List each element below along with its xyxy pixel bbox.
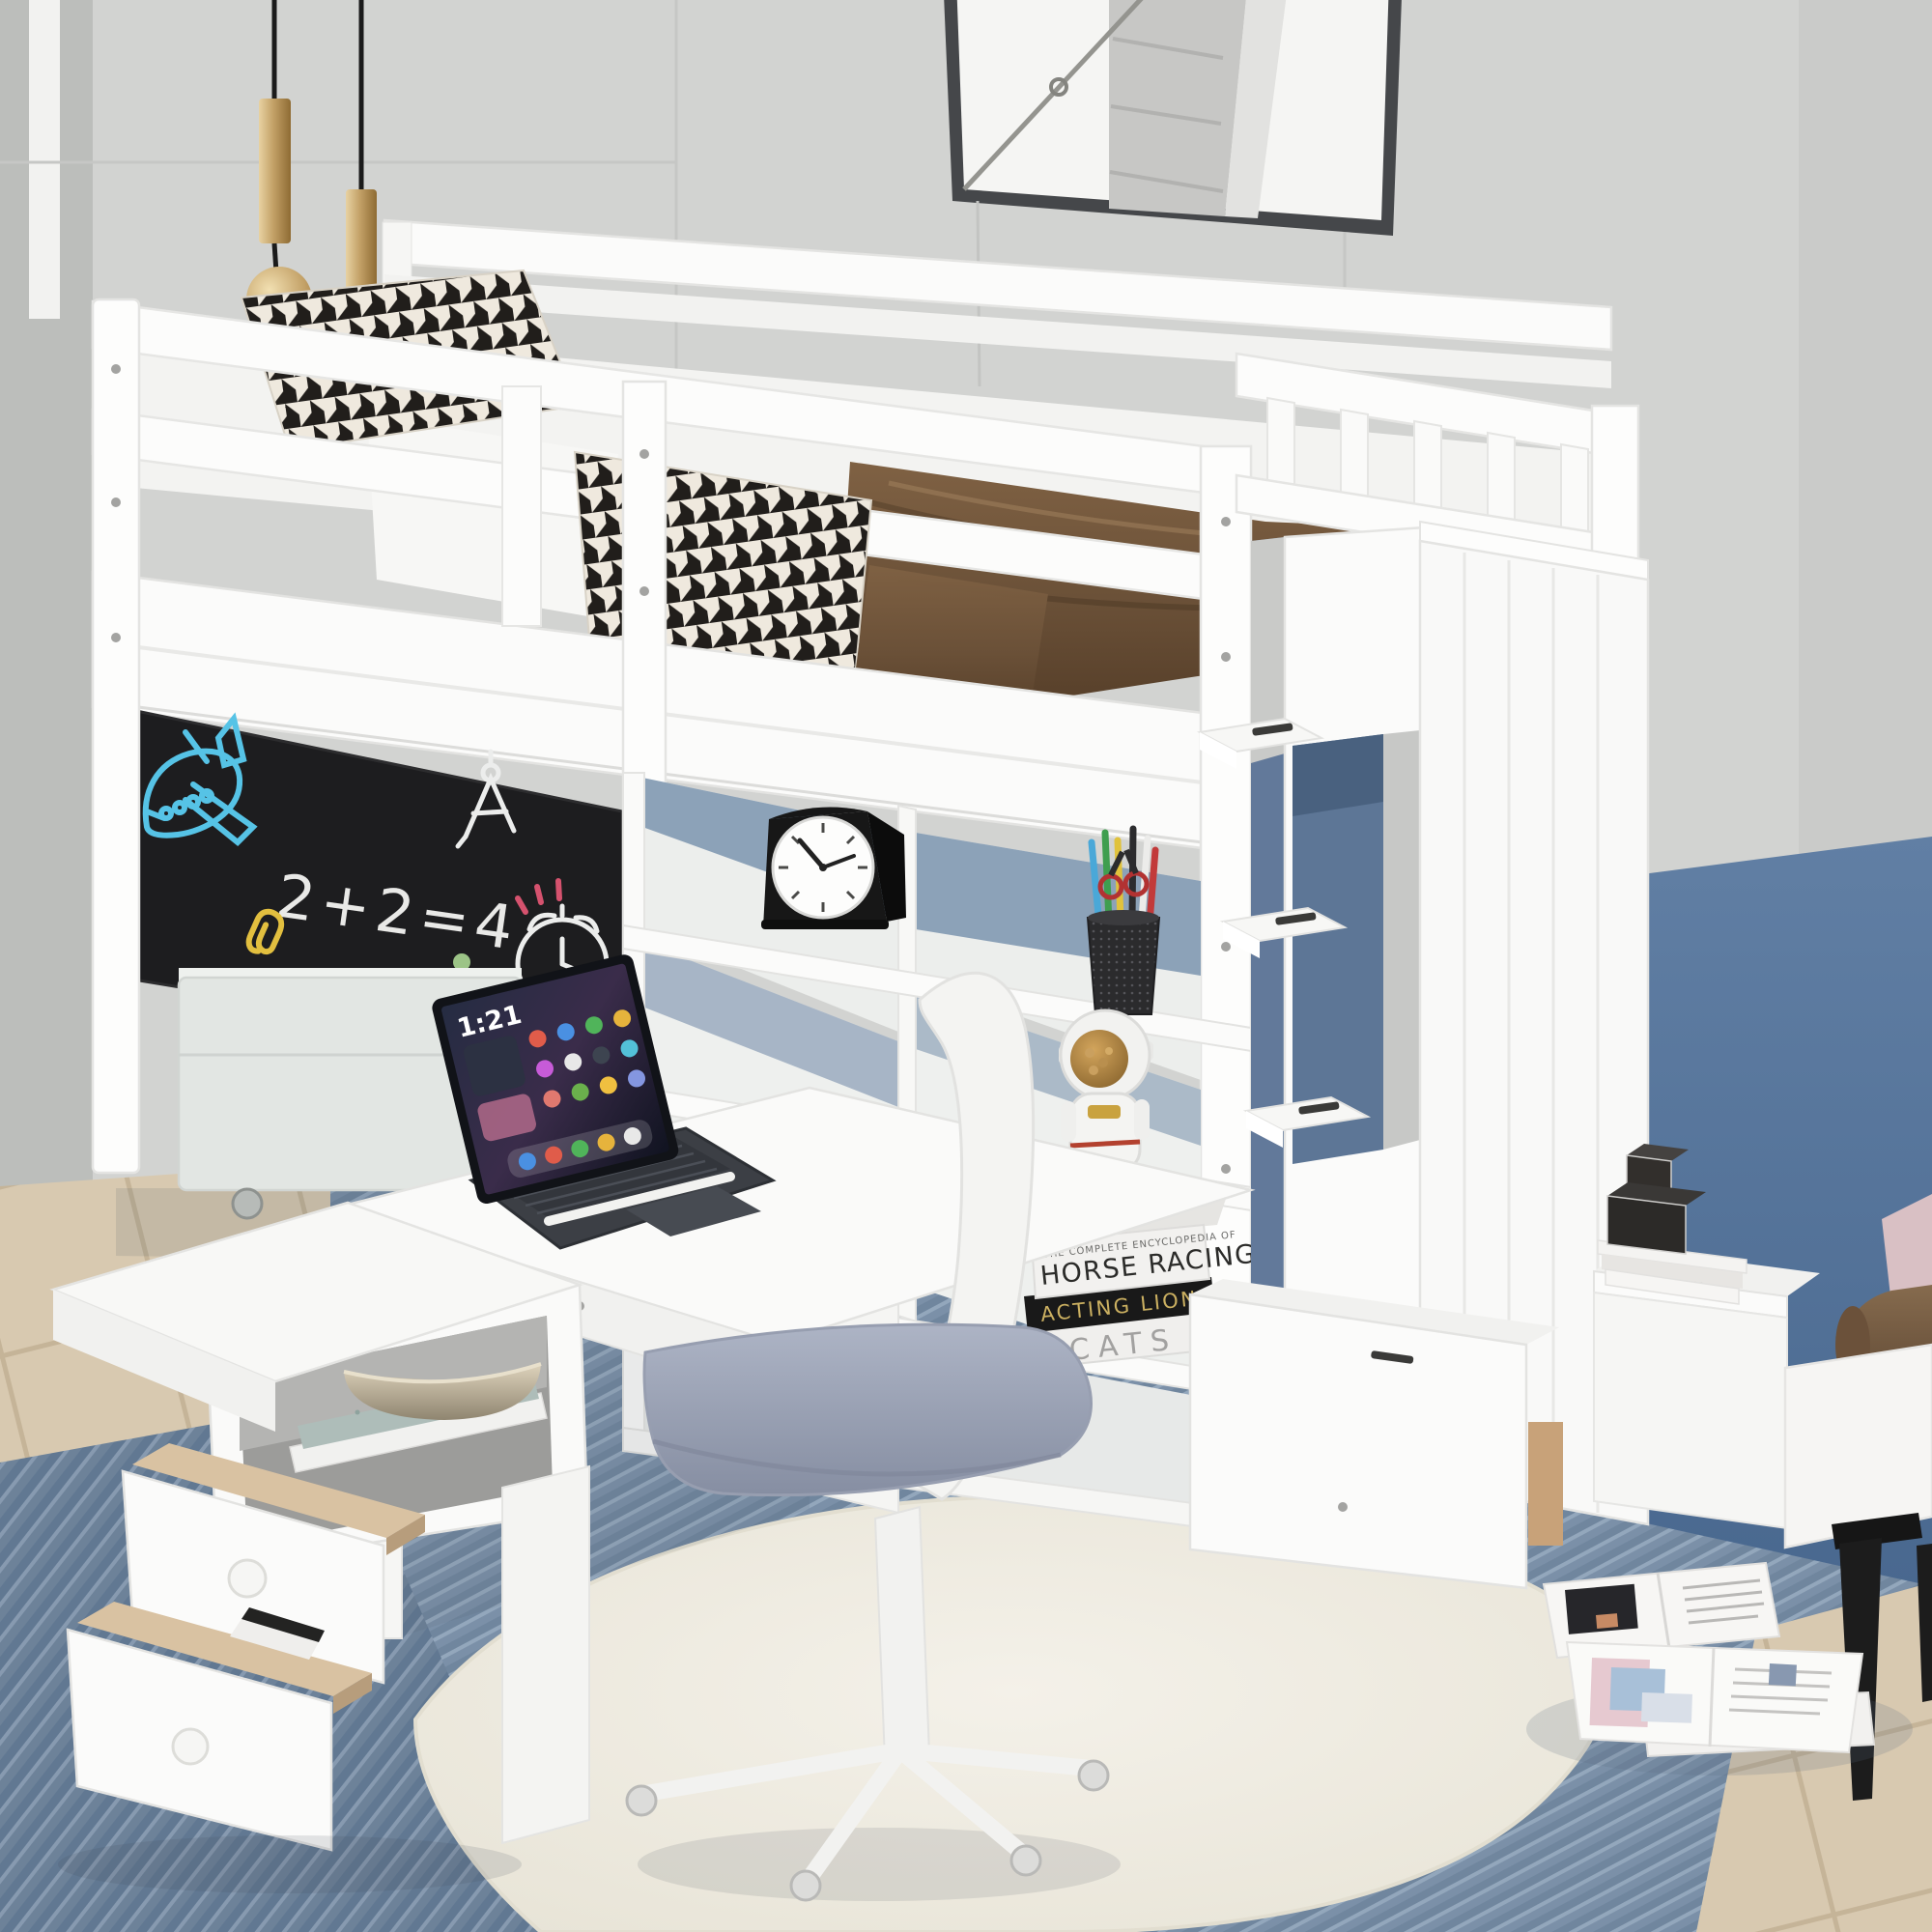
bed-post-mid-left xyxy=(502,386,541,626)
return-side xyxy=(502,1466,589,1843)
product-photo: 2+2=4 xyxy=(0,0,1932,1932)
stair-base-cabinet xyxy=(1190,1279,1559,1588)
chair-column xyxy=(875,1507,929,1760)
wood-leg xyxy=(1528,1422,1563,1546)
room-scene: 2+2=4 xyxy=(0,0,1932,1932)
desk-return xyxy=(53,1203,589,1893)
bed-post-left xyxy=(93,299,139,1173)
pendant-cylinder-1 xyxy=(259,99,291,243)
caster-wheel xyxy=(233,1189,262,1218)
drawer-knob xyxy=(173,1729,208,1764)
drawer-knob xyxy=(229,1560,266,1597)
desk-clock xyxy=(761,808,906,930)
curtain-edge xyxy=(29,0,60,319)
